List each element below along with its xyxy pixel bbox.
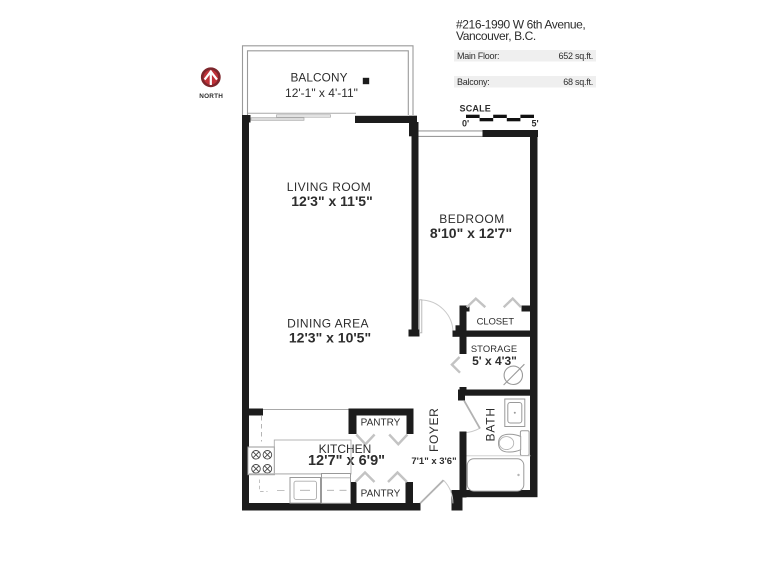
svg-text:DINING AREA: DINING AREA (287, 316, 369, 330)
svg-text:12'3" x 10'5": 12'3" x 10'5" (289, 329, 371, 345)
svg-text:NORTH: NORTH (199, 93, 223, 100)
svg-text:PANTRY: PANTRY (361, 488, 401, 499)
svg-text:5' x 4'3": 5' x 4'3" (472, 354, 517, 368)
svg-text:12'7" x 6'9": 12'7" x 6'9" (308, 453, 385, 469)
svg-text:Balcony:: Balcony: (457, 77, 490, 87)
svg-text:68 sq.ft.: 68 sq.ft. (563, 77, 593, 87)
svg-text:12'-1" x 4'-11": 12'-1" x 4'-11" (285, 86, 358, 100)
svg-text:7'1" x 3'6": 7'1" x 3'6" (411, 456, 456, 467)
svg-text:652 sq.ft.: 652 sq.ft. (558, 51, 593, 61)
svg-text:BATH: BATH (483, 407, 497, 441)
svg-text:LIVING ROOM: LIVING ROOM (287, 180, 371, 194)
svg-text:CLOSET: CLOSET (477, 316, 515, 327)
svg-text:BALCONY: BALCONY (290, 71, 347, 85)
svg-text:FOYER: FOYER (427, 408, 441, 452)
svg-text:5': 5' (532, 119, 539, 129)
svg-text:12'3" x 11'5": 12'3" x 11'5" (291, 193, 372, 209)
svg-text:Main Floor:: Main Floor: (457, 51, 499, 61)
svg-text:Vancouver, B.C.: Vancouver, B.C. (456, 29, 536, 43)
svg-text:PANTRY: PANTRY (361, 418, 401, 429)
svg-text:SCALE: SCALE (460, 103, 492, 113)
svg-text:0': 0' (462, 119, 469, 129)
svg-text:STORAGE: STORAGE (471, 343, 517, 354)
svg-text:8'10" x 12'7": 8'10" x 12'7" (430, 225, 512, 241)
